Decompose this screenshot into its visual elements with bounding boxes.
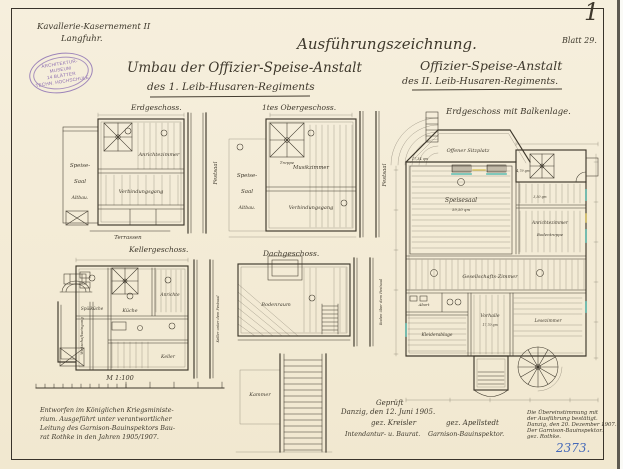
floor-plan-kellergeschoss: Wirtschaftseingang Spülküche Küche Anric… bbox=[56, 252, 224, 392]
corner-pencil-mark: 1 bbox=[584, 0, 599, 26]
room-label-festsaal: Festsaal bbox=[382, 163, 388, 187]
designed-note-line4: rat Rothke in den Jahren 1905/1907. bbox=[40, 433, 175, 442]
approval-title: Geprüft bbox=[376, 399, 403, 407]
sheet-number: Blatt 29. bbox=[562, 36, 597, 45]
location-line1: Kavallerie-Kasernement II bbox=[37, 22, 150, 32]
room-label-boden-festsaal: Boden über dem Festsaal bbox=[379, 279, 383, 326]
location-line2: Langfuhr. bbox=[61, 34, 103, 44]
area-label-vorhalle: 17,70 qm bbox=[482, 323, 497, 327]
left-title-line2: des 1. Leib-Husaren-Regiments bbox=[147, 81, 315, 93]
room-label-gesellschaftszimmer: Gesellschafts-Zimmer bbox=[462, 274, 518, 280]
room-label-speise: Speise- bbox=[237, 173, 257, 179]
room-label-kammer: Kammer bbox=[248, 392, 271, 398]
room-label-festsaal: Festsaal bbox=[213, 161, 219, 185]
floor-plan-hauptplan: Offener Sitzplatz 17,34 qm 4,79 qm Speis… bbox=[390, 110, 610, 408]
entrance-porch bbox=[474, 356, 508, 390]
approval-role-2: Garnison-Bauinspektor. bbox=[428, 430, 504, 438]
room-label-anrichtezimmer: Anrichtezimmer bbox=[531, 221, 569, 226]
room-label-speise: Speise- bbox=[70, 163, 90, 169]
designed-note-line2: rium. Ausgeführt unter verantwortlicher bbox=[40, 415, 175, 424]
designed-note-line3: Leitung des Garnison-Bauinspektors Bau- bbox=[40, 424, 175, 433]
room-label-anrichte: Anrichte bbox=[159, 293, 180, 298]
room-label-musikzimmer: Musikzimmer bbox=[292, 165, 329, 171]
designed-note-line1: Entworfen im Königlichen Kriegsministe- bbox=[40, 406, 175, 415]
area-label-speisesaal: 59,50 qm bbox=[452, 207, 471, 212]
room-label-abort: Abort bbox=[418, 302, 430, 307]
approval-signature-2: gez. Apellstedt bbox=[446, 419, 499, 427]
floor-plan-erdgeschoss: Speise- Saal Altbau. Anrichtezimmer Verb… bbox=[60, 111, 224, 241]
right-title-line2: des II. Leib-Husaren-Regiments. bbox=[402, 76, 558, 87]
scale-label: M 1:100 bbox=[105, 374, 133, 382]
document-type-title: Ausführungszeichnung. bbox=[297, 35, 477, 53]
area-label-treppe: 4,79 qm bbox=[515, 169, 529, 173]
area-label-aufzug: 3,50 qm bbox=[533, 195, 546, 199]
room-label-kueche: Küche bbox=[121, 308, 137, 314]
attic-stair-icon bbox=[322, 304, 338, 334]
room-label-spuelkueche: Spülküche bbox=[81, 306, 104, 311]
room-label-speisesaal: Speisesaal bbox=[445, 197, 477, 204]
drawing-sheet: Kavallerie-Kasernement II Langfuhr. ARCH… bbox=[0, 0, 623, 469]
area-label-sitzplatz: 17,34 qm bbox=[412, 157, 428, 161]
room-label-vorhalle: Vorhalle bbox=[480, 313, 499, 319]
tower bbox=[426, 112, 438, 142]
floor-plan-obergeschoss: Speise- Saal Altbau. Treppe Musikzimmer … bbox=[226, 111, 392, 245]
room-label-lesezimmer: Lesezimmer bbox=[533, 319, 562, 324]
confirmation-line5: gez. Rothke. bbox=[527, 435, 617, 441]
room-label-bodentreppe: Bodentreppe bbox=[536, 232, 564, 237]
right-title-line1: Offizier-Speise-Anstalt bbox=[420, 58, 562, 73]
room-label-bodenraum: Bodenraum bbox=[260, 302, 291, 308]
room-label-keller-festsaal: Keller unter dem Festsaal bbox=[216, 295, 220, 343]
left-title-line1: Umbau der Offizier-Speise-Anstalt bbox=[127, 60, 362, 76]
room-label-altbau: Altbau. bbox=[71, 195, 89, 201]
confirmation-note: Die Übereinstimmung mit der Ausführung b… bbox=[527, 411, 617, 441]
room-label-saal: Saal bbox=[74, 179, 86, 185]
room-label-anrichtezimmer: Anrichtezimmer bbox=[138, 152, 180, 158]
room-label-verbindungsgang: Verbindungsgang bbox=[119, 189, 164, 195]
scale-bar: M 1:100 bbox=[32, 372, 227, 396]
designed-note: Entworfen im Königlichen Kriegsministe- … bbox=[40, 406, 175, 442]
floor-plan-dachgeschoss: Bodenraum Boden über dem Festsaal Kammer bbox=[226, 254, 392, 456]
approval-signature-1: gez. Kreisler bbox=[371, 419, 416, 427]
room-label-altbau: Altbau. bbox=[238, 205, 256, 211]
room-label-verbindungsgang: Verbindungsgang bbox=[289, 205, 334, 211]
chimney-block bbox=[268, 256, 302, 280]
inventory-number: 2373. bbox=[556, 441, 590, 455]
room-label-saal: Saal bbox=[241, 189, 253, 195]
stair-treads bbox=[284, 360, 322, 450]
approval-role-1: Intendantur- u. Baurat. bbox=[345, 430, 420, 438]
room-label-terrassen: Terrassen bbox=[114, 235, 142, 241]
room-label-keller: Keller bbox=[160, 354, 176, 360]
approval-date: Danzig, den 12. Juni 1905. bbox=[341, 408, 435, 416]
room-label-kleiderablage: Kleiderablage bbox=[420, 333, 452, 338]
room-label-gang: Wirtschaftseingang bbox=[79, 317, 84, 355]
room-label-sitzplatz: Offener Sitzplatz bbox=[447, 148, 490, 154]
